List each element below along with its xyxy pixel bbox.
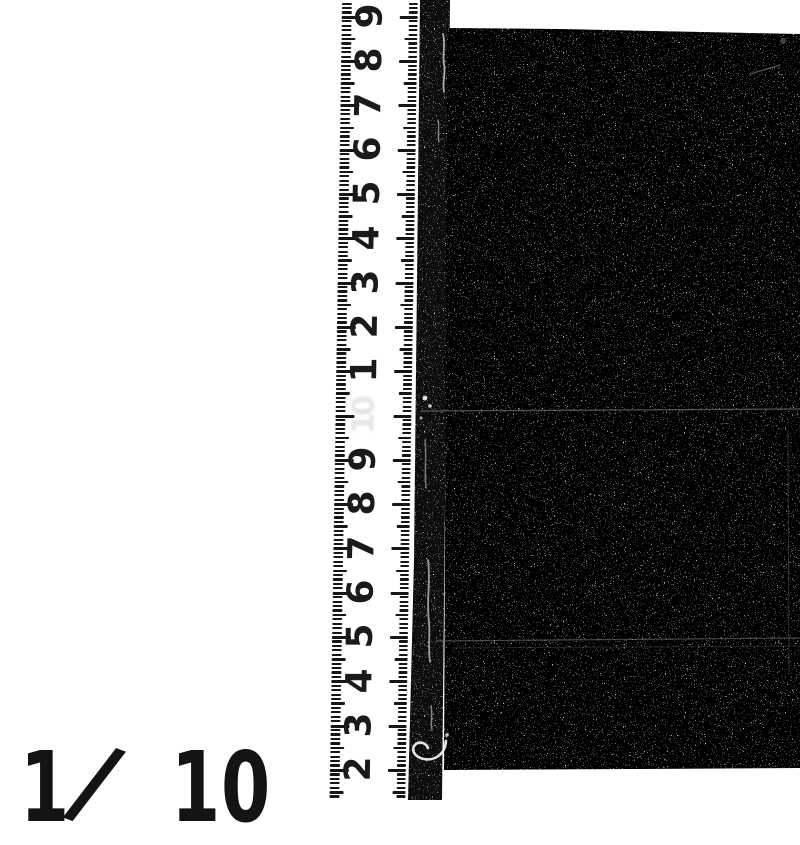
film-region — [0, 0, 800, 800]
scratch-speck — [445, 733, 449, 737]
scratch-line — [425, 440, 426, 488]
photo-dark-area — [444, 28, 800, 770]
scratch-line — [438, 120, 439, 142]
scratch-speck — [780, 38, 786, 44]
scratch-speck — [428, 404, 432, 408]
scratch-line — [431, 706, 432, 730]
scratch-speck — [420, 417, 423, 420]
film-edge-bar — [408, 0, 450, 800]
scratch-speck — [423, 396, 428, 401]
scratch-line — [443, 34, 445, 92]
